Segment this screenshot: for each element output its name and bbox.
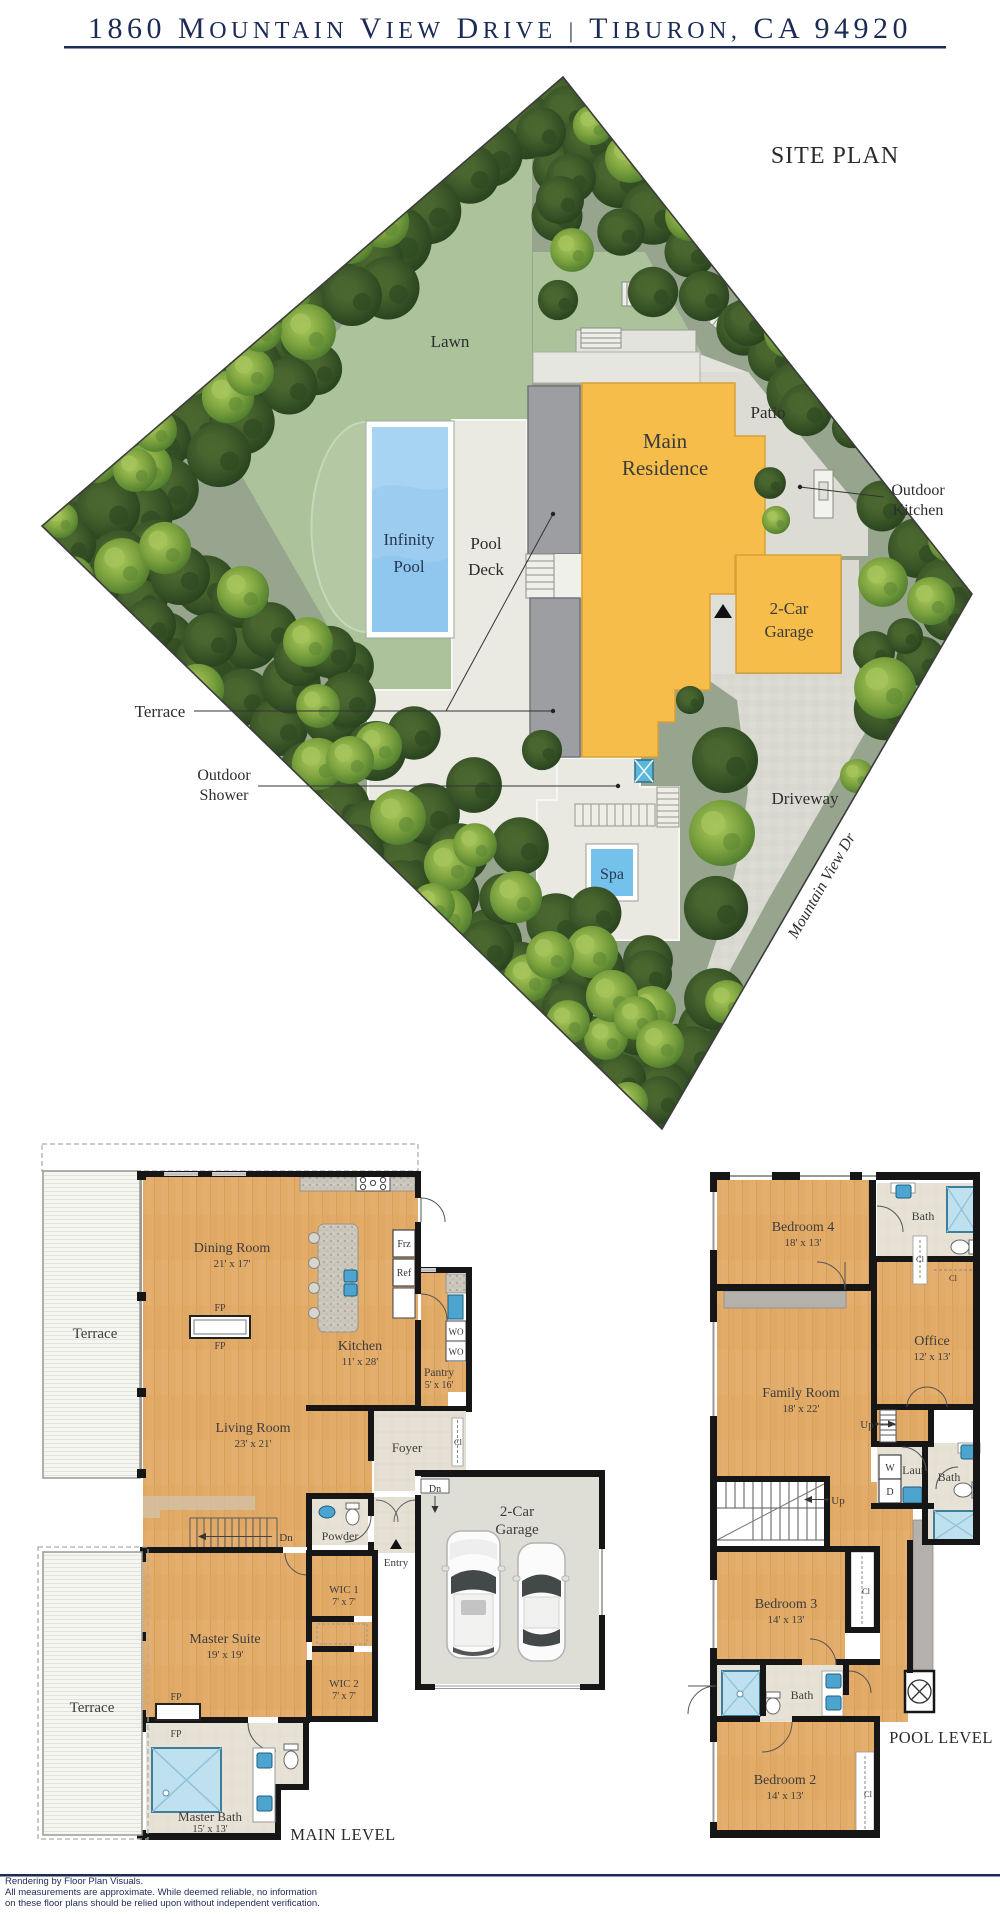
svg-text:Master Suite: Master Suite	[189, 1632, 260, 1647]
svg-text:Garage: Garage	[495, 1522, 539, 1538]
svg-text:Living Room: Living Room	[215, 1421, 290, 1436]
svg-text:Outdoor: Outdoor	[197, 767, 251, 784]
svg-text:21' x 17': 21' x 17'	[214, 1258, 251, 1270]
svg-text:on these floor plans should be: on these floor plans should be relied up…	[5, 1898, 320, 1909]
svg-text:D: D	[886, 1487, 893, 1498]
svg-text:Terrace: Terrace	[135, 702, 186, 721]
svg-text:12' x 13': 12' x 13'	[914, 1351, 951, 1363]
svg-text:Bath: Bath	[791, 1688, 814, 1702]
svg-text:SITE PLAN: SITE PLAN	[771, 143, 899, 169]
svg-text:11' x 28': 11' x 28'	[342, 1356, 379, 1368]
svg-text:Kitchen: Kitchen	[338, 1339, 382, 1354]
svg-text:Dn: Dn	[279, 1532, 293, 1544]
svg-text:Bath: Bath	[938, 1470, 961, 1484]
svg-text:19' x 19': 19' x 19'	[207, 1649, 244, 1661]
svg-text:Frz: Frz	[397, 1239, 411, 1250]
svg-text:MAIN LEVEL: MAIN LEVEL	[290, 1825, 395, 1844]
svg-text:Dining Room: Dining Room	[194, 1241, 271, 1256]
svg-text:Deck: Deck	[468, 560, 504, 579]
svg-text:7' x 7': 7' x 7'	[332, 1597, 356, 1608]
svg-text:Pool: Pool	[470, 534, 501, 553]
svg-text:Main: Main	[643, 429, 688, 453]
svg-text:Foyer: Foyer	[392, 1440, 423, 1455]
svg-text:Bath: Bath	[912, 1209, 935, 1223]
svg-text:Cl: Cl	[862, 1586, 871, 1596]
svg-text:7' x 7': 7' x 7'	[332, 1691, 356, 1702]
svg-text:Terrace: Terrace	[70, 1700, 115, 1716]
svg-text:POOL LEVEL: POOL LEVEL	[889, 1728, 993, 1747]
svg-text:5' x 16': 5' x 16'	[425, 1380, 454, 1391]
svg-text:FP: FP	[214, 1341, 226, 1352]
svg-text:18' x 22': 18' x 22'	[783, 1403, 820, 1415]
svg-text:Residence: Residence	[622, 456, 708, 480]
svg-text:14' x 13': 14' x 13'	[767, 1790, 804, 1802]
svg-text:FP: FP	[170, 1692, 182, 1703]
svg-text:Kitchen: Kitchen	[893, 502, 944, 519]
svg-text:2-Car: 2-Car	[500, 1504, 534, 1520]
svg-text:Outdoor: Outdoor	[891, 482, 945, 499]
svg-text:Pantry: Pantry	[424, 1367, 454, 1379]
svg-text:15' x 13': 15' x 13'	[192, 1824, 227, 1835]
svg-text:Pool: Pool	[393, 557, 424, 576]
svg-text:Entry: Entry	[384, 1557, 409, 1569]
svg-text:FP: FP	[170, 1729, 182, 1740]
svg-text:Cl: Cl	[454, 1437, 463, 1447]
svg-text:Family Room: Family Room	[762, 1386, 840, 1401]
svg-text:Up: Up	[831, 1495, 845, 1507]
svg-text:Bedroom 3: Bedroom 3	[755, 1597, 818, 1612]
svg-text:Cl: Cl	[864, 1789, 873, 1799]
svg-text:Lawn: Lawn	[431, 332, 470, 351]
svg-text:2-Car: 2-Car	[770, 599, 809, 618]
svg-text:Dn: Dn	[429, 1484, 441, 1495]
svg-text:W: W	[885, 1463, 895, 1474]
svg-text:Shower: Shower	[200, 787, 250, 804]
svg-text:Infinity: Infinity	[384, 530, 435, 549]
svg-text:23' x 21': 23' x 21'	[235, 1438, 272, 1450]
svg-text:Up: Up	[860, 1419, 874, 1431]
svg-text:Ref: Ref	[397, 1268, 412, 1279]
svg-text:FP: FP	[214, 1303, 226, 1314]
svg-text:Spa: Spa	[600, 866, 624, 883]
svg-text:Master Bath: Master Bath	[178, 1809, 242, 1824]
svg-text:Driveway: Driveway	[771, 789, 839, 808]
svg-text:Cl: Cl	[949, 1273, 958, 1283]
svg-text:Patio: Patio	[751, 403, 786, 422]
svg-text:Bedroom 4: Bedroom 4	[772, 1220, 835, 1235]
svg-text:WIC 2: WIC 2	[329, 1678, 359, 1690]
svg-text:WIC 1: WIC 1	[329, 1584, 359, 1596]
svg-text:Bedroom 2: Bedroom 2	[754, 1773, 817, 1788]
svg-text:WO: WO	[449, 1327, 464, 1337]
svg-text:Cl: Cl	[916, 1254, 925, 1264]
svg-text:Terrace: Terrace	[73, 1326, 118, 1342]
svg-text:14' x 13': 14' x 13'	[768, 1614, 805, 1626]
svg-text:18' x 13': 18' x 13'	[785, 1237, 822, 1249]
svg-text:Office: Office	[914, 1334, 950, 1349]
svg-text:All measurements are approxima: All measurements are approximate. While …	[5, 1887, 317, 1898]
svg-text:Rendering by Floor Plan Visual: Rendering by Floor Plan Visuals.	[5, 1876, 143, 1887]
svg-text:WO: WO	[449, 1347, 464, 1357]
svg-text:Garage: Garage	[764, 622, 813, 641]
